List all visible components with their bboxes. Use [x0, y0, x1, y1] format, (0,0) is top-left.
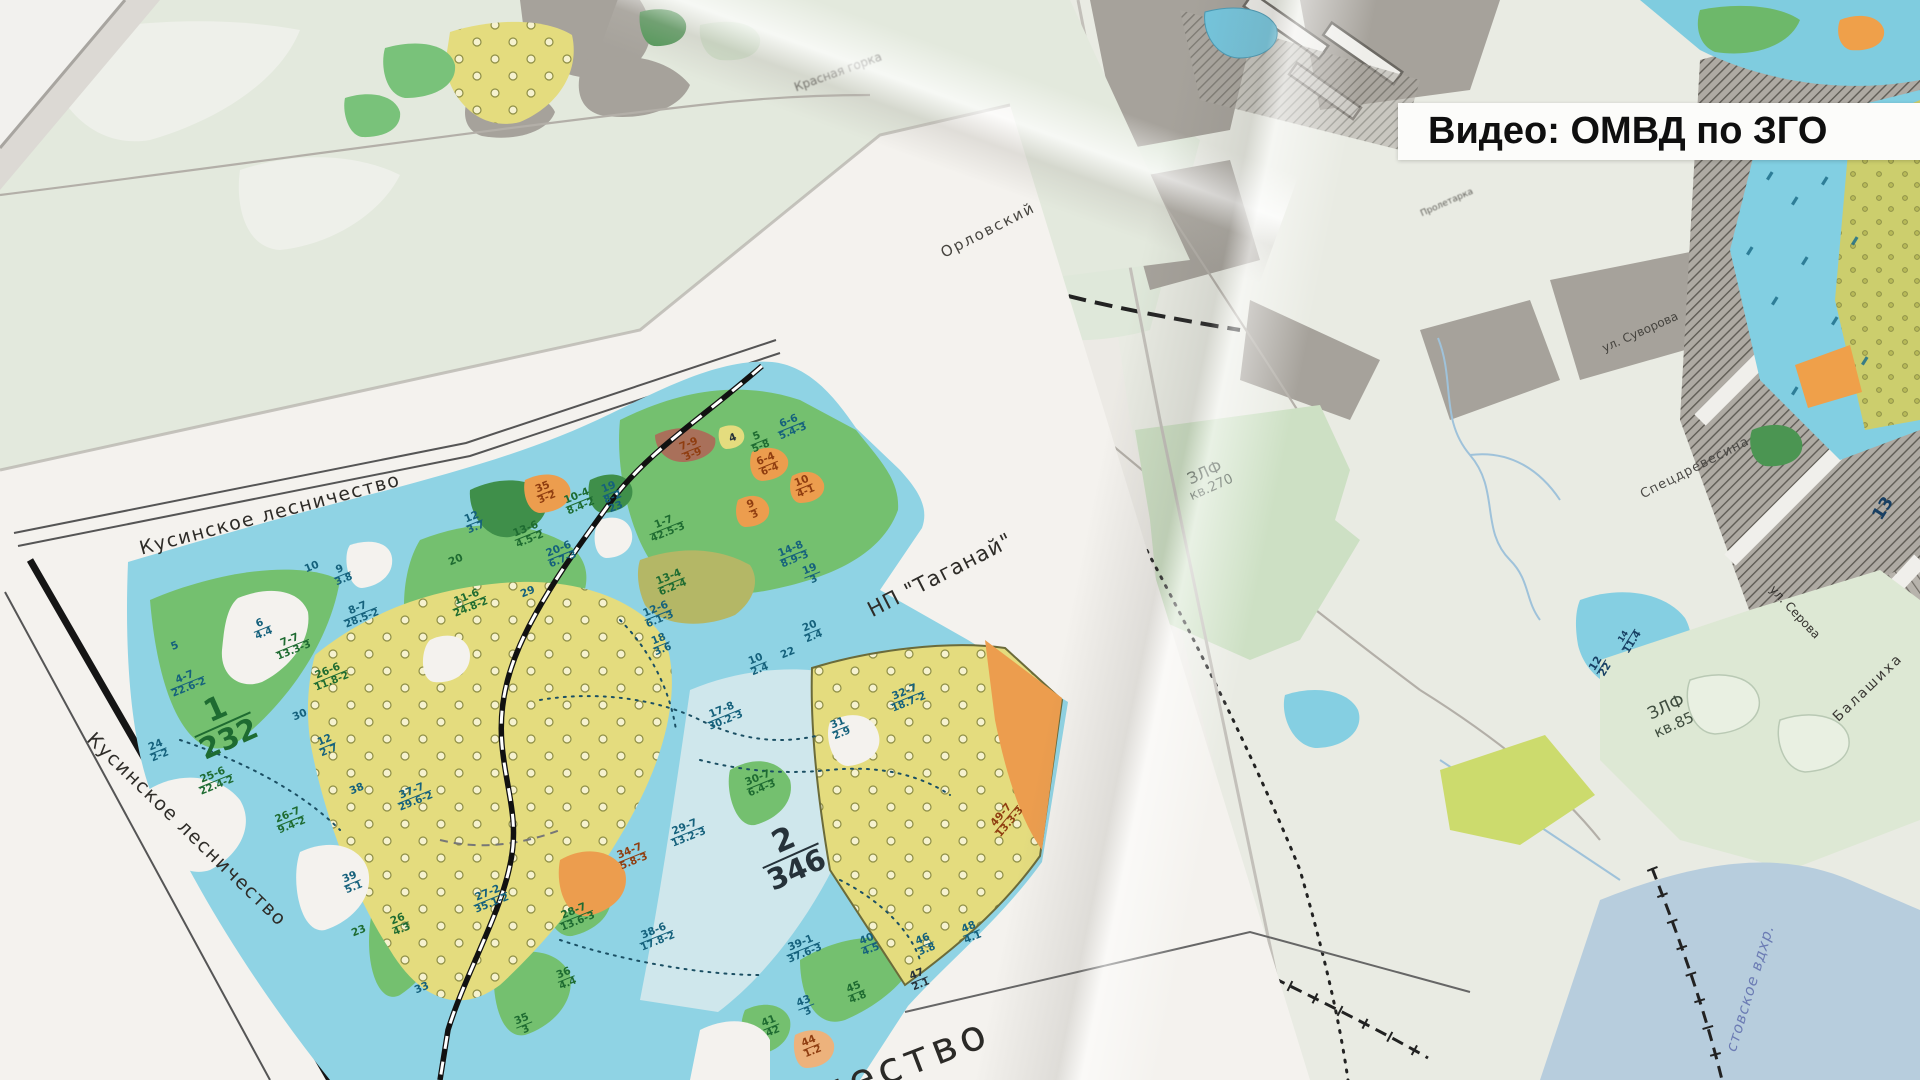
video-frame: Кусинское лесничество Кусинское лесничес…: [0, 0, 1920, 1080]
olive-strip: [638, 550, 755, 623]
map-artwork: [0, 0, 1920, 1080]
video-source-caption: Видео: ОМВД по ЗГО: [1398, 103, 1920, 160]
